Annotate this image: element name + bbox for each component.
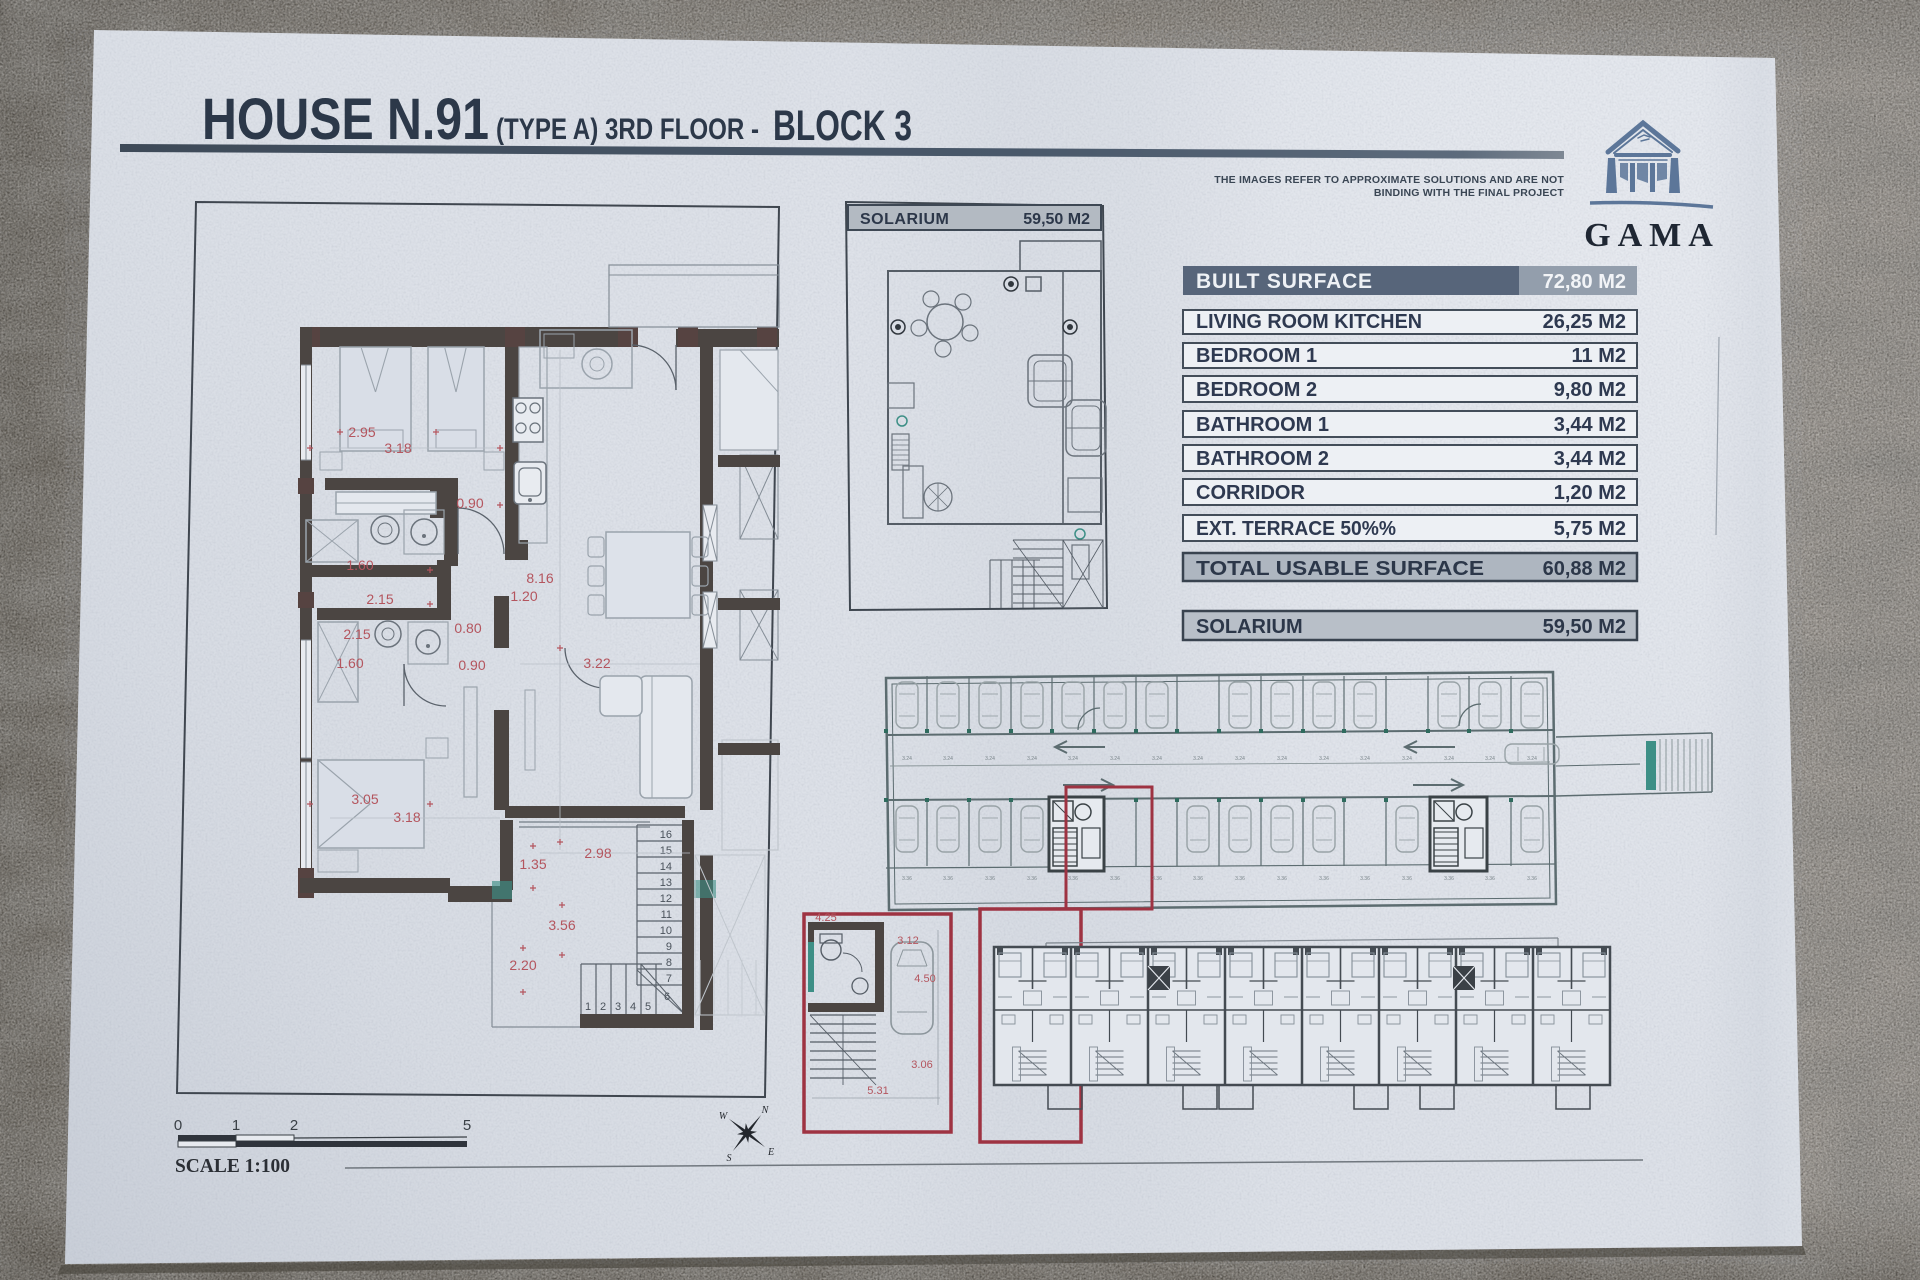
svg-text:7: 7 xyxy=(666,973,672,985)
svg-text:3.36: 3.36 xyxy=(1152,876,1162,882)
svg-text:3.24: 3.24 xyxy=(1152,756,1162,762)
svg-text:SOLARIUM: SOLARIUM xyxy=(1196,616,1303,638)
svg-text:3.24: 3.24 xyxy=(1027,756,1037,762)
svg-text:3.24: 3.24 xyxy=(902,756,912,762)
svg-text:6: 6 xyxy=(664,991,670,1003)
svg-text:3.24: 3.24 xyxy=(985,756,995,762)
svg-text:3.24: 3.24 xyxy=(1277,756,1287,762)
svg-text:2.15: 2.15 xyxy=(366,591,393,607)
svg-text:3.36: 3.36 xyxy=(1485,876,1495,882)
svg-text:1.20: 1.20 xyxy=(510,588,537,604)
svg-text:3.56: 3.56 xyxy=(548,917,575,933)
svg-text:0.80: 0.80 xyxy=(454,620,481,636)
svg-text:3.24: 3.24 xyxy=(1319,756,1329,762)
svg-text:3.36: 3.36 xyxy=(1068,876,1078,882)
svg-text:BLOCK 3: BLOCK 3 xyxy=(773,102,912,150)
svg-text:(TYPE A) 3RD FLOOR -: (TYPE A) 3RD FLOOR - xyxy=(496,113,759,146)
svg-text:1: 1 xyxy=(585,1001,591,1013)
svg-text:3.24: 3.24 xyxy=(1235,756,1245,762)
svg-text:11: 11 xyxy=(661,909,672,921)
svg-text:4: 4 xyxy=(630,1001,636,1013)
svg-text:3.24: 3.24 xyxy=(1444,756,1454,762)
svg-text:3.36: 3.36 xyxy=(1235,876,1245,882)
svg-text:9: 9 xyxy=(666,941,672,953)
svg-text:3.36: 3.36 xyxy=(1402,876,1412,882)
svg-text:HOUSE N.91: HOUSE N.91 xyxy=(202,87,489,152)
svg-text:3.18: 3.18 xyxy=(393,809,420,825)
svg-text:9,80 M2: 9,80 M2 xyxy=(1554,379,1626,401)
svg-text:S: S xyxy=(727,1153,732,1164)
svg-text:3.24: 3.24 xyxy=(1068,756,1078,762)
svg-text:2: 2 xyxy=(600,1001,606,1013)
svg-text:3.36: 3.36 xyxy=(985,876,995,882)
svg-text:GAMA: GAMA xyxy=(1584,217,1720,254)
svg-text:14: 14 xyxy=(660,861,672,873)
svg-text:4.50: 4.50 xyxy=(914,973,935,985)
svg-text:3.36: 3.36 xyxy=(1360,876,1370,882)
svg-text:3.36: 3.36 xyxy=(1110,876,1120,882)
svg-text:10: 10 xyxy=(660,925,672,937)
svg-text:0: 0 xyxy=(174,1117,182,1134)
svg-text:3.18: 3.18 xyxy=(384,440,411,456)
svg-text:SOLARIUM: SOLARIUM xyxy=(860,211,949,228)
svg-text:1.60: 1.60 xyxy=(336,655,363,671)
svg-text:2.95: 2.95 xyxy=(348,424,375,440)
svg-text:8.16: 8.16 xyxy=(526,570,553,586)
svg-text:3.24: 3.24 xyxy=(943,756,953,762)
svg-text:2.15: 2.15 xyxy=(343,626,370,642)
svg-text:BEDROOM 1: BEDROOM 1 xyxy=(1196,345,1317,367)
svg-text:3: 3 xyxy=(615,1001,621,1013)
svg-text:3,44 M2: 3,44 M2 xyxy=(1554,414,1626,436)
svg-text:3.24: 3.24 xyxy=(1193,756,1203,762)
svg-text:2.20: 2.20 xyxy=(509,957,536,973)
svg-text:5: 5 xyxy=(463,1117,471,1134)
svg-text:5.31: 5.31 xyxy=(867,1085,888,1097)
svg-text:12: 12 xyxy=(660,893,672,905)
svg-text:72,80 M2: 72,80 M2 xyxy=(1543,271,1626,293)
svg-text:3.36: 3.36 xyxy=(1193,876,1203,882)
svg-text:3.05: 3.05 xyxy=(351,791,378,807)
svg-text:BATHROOM 2: BATHROOM 2 xyxy=(1196,448,1329,470)
svg-text:TOTAL USABLE SURFACE: TOTAL USABLE SURFACE xyxy=(1196,558,1484,580)
svg-text:13: 13 xyxy=(660,877,672,889)
svg-text:3.24: 3.24 xyxy=(1360,756,1370,762)
svg-text:3.22: 3.22 xyxy=(583,655,610,671)
svg-text:59,50 M2: 59,50 M2 xyxy=(1543,616,1626,638)
svg-text:3.36: 3.36 xyxy=(1527,876,1537,882)
svg-text:3.36: 3.36 xyxy=(1319,876,1329,882)
svg-text:0.90: 0.90 xyxy=(456,495,483,511)
svg-text:3.36: 3.36 xyxy=(902,876,912,882)
svg-text:26,25 M2: 26,25 M2 xyxy=(1543,311,1626,333)
svg-text:CORRIDOR: CORRIDOR xyxy=(1196,482,1305,504)
svg-text:3.12: 3.12 xyxy=(897,935,918,947)
svg-text:BEDROOM 2: BEDROOM 2 xyxy=(1196,379,1317,401)
svg-text:3.36: 3.36 xyxy=(1277,876,1287,882)
svg-text:SCALE 1:100: SCALE 1:100 xyxy=(175,1155,290,1177)
svg-text:3.36: 3.36 xyxy=(1444,876,1454,882)
svg-text:3.36: 3.36 xyxy=(943,876,953,882)
svg-text:60,88 M2: 60,88 M2 xyxy=(1543,558,1626,580)
svg-text:4.25: 4.25 xyxy=(815,912,836,924)
svg-text:BINDING WITH THE FINAL PROJECT: BINDING WITH THE FINAL PROJECT xyxy=(1374,187,1565,199)
svg-text:3.24: 3.24 xyxy=(1402,756,1412,762)
svg-text:15: 15 xyxy=(660,845,672,857)
svg-text:2: 2 xyxy=(290,1117,298,1134)
svg-text:8: 8 xyxy=(666,957,672,969)
svg-text:BUILT SURFACE: BUILT SURFACE xyxy=(1196,270,1373,293)
svg-text:3.24: 3.24 xyxy=(1485,756,1495,762)
svg-text:5: 5 xyxy=(645,1001,651,1013)
svg-text:BATHROOM 1: BATHROOM 1 xyxy=(1196,414,1329,436)
svg-text:EXT. TERRACE 50%%: EXT. TERRACE 50%% xyxy=(1196,518,1396,540)
svg-text:11 M2: 11 M2 xyxy=(1572,345,1626,367)
svg-text:59,50 M2: 59,50 M2 xyxy=(1023,211,1090,228)
svg-text:0.90: 0.90 xyxy=(458,657,485,673)
svg-text:3.24: 3.24 xyxy=(1527,756,1537,762)
svg-text:3.06: 3.06 xyxy=(911,1059,932,1071)
svg-text:THE IMAGES REFER TO APPROXIMAT: THE IMAGES REFER TO APPROXIMATE SOLUTION… xyxy=(1214,174,1564,186)
svg-text:5,75 M2: 5,75 M2 xyxy=(1554,518,1626,540)
svg-text:3.24: 3.24 xyxy=(1110,756,1120,762)
svg-text:1,20 M2: 1,20 M2 xyxy=(1554,482,1626,504)
svg-text:LIVING ROOM KITCHEN: LIVING ROOM KITCHEN xyxy=(1196,311,1422,333)
svg-text:1: 1 xyxy=(232,1117,240,1134)
svg-text:2.98: 2.98 xyxy=(584,845,611,861)
svg-text:E: E xyxy=(767,1147,774,1158)
svg-text:3,44 M2: 3,44 M2 xyxy=(1554,448,1626,470)
svg-text:16: 16 xyxy=(660,829,672,841)
svg-text:N: N xyxy=(761,1105,770,1116)
svg-text:3.36: 3.36 xyxy=(1027,876,1037,882)
svg-text:1.60: 1.60 xyxy=(346,557,373,573)
svg-text:1.35: 1.35 xyxy=(519,856,546,872)
